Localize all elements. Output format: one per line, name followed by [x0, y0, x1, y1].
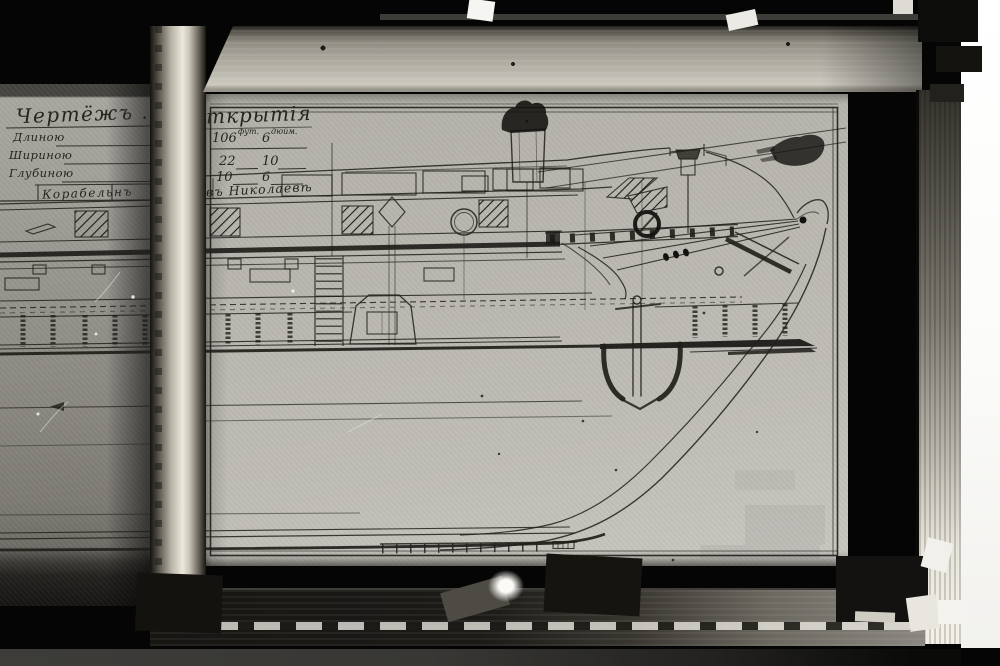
frame-rail-bottom-highlight — [170, 622, 920, 630]
photo-bottom-strip — [0, 649, 961, 666]
frame-top-inner-edge — [380, 14, 925, 20]
reflection-top-3 — [893, 0, 913, 14]
frame-corner-hinge-top-right — [918, 0, 978, 42]
reflection-bottom-right-3 — [938, 600, 962, 624]
drawing-sheet-left-pane — [0, 84, 152, 606]
reflection-top-1 — [467, 0, 496, 22]
frame-clamp-bottom-left — [135, 573, 223, 634]
frame-rail-left — [150, 26, 206, 618]
photo-white-margin-right — [961, 0, 1000, 648]
drawing-sheet-main-pane — [202, 94, 848, 566]
frame-rail-bottom — [150, 588, 925, 646]
reflection-bottom-right-4 — [855, 611, 895, 622]
reflection-bottom-left — [488, 570, 524, 602]
frame-clamp-bottom-center — [544, 554, 643, 617]
reflection-bottom-right-2 — [906, 594, 940, 632]
frame-corner-hinge-top-right-2 — [936, 46, 982, 72]
photograph-of-framed-ship-drawing: Чертёжъ . Ш ткрытія Длиною Шириною Глуби… — [0, 0, 1000, 666]
frame-corner-hinge-top-right-3 — [930, 84, 964, 102]
frame-rail-top — [203, 26, 922, 92]
